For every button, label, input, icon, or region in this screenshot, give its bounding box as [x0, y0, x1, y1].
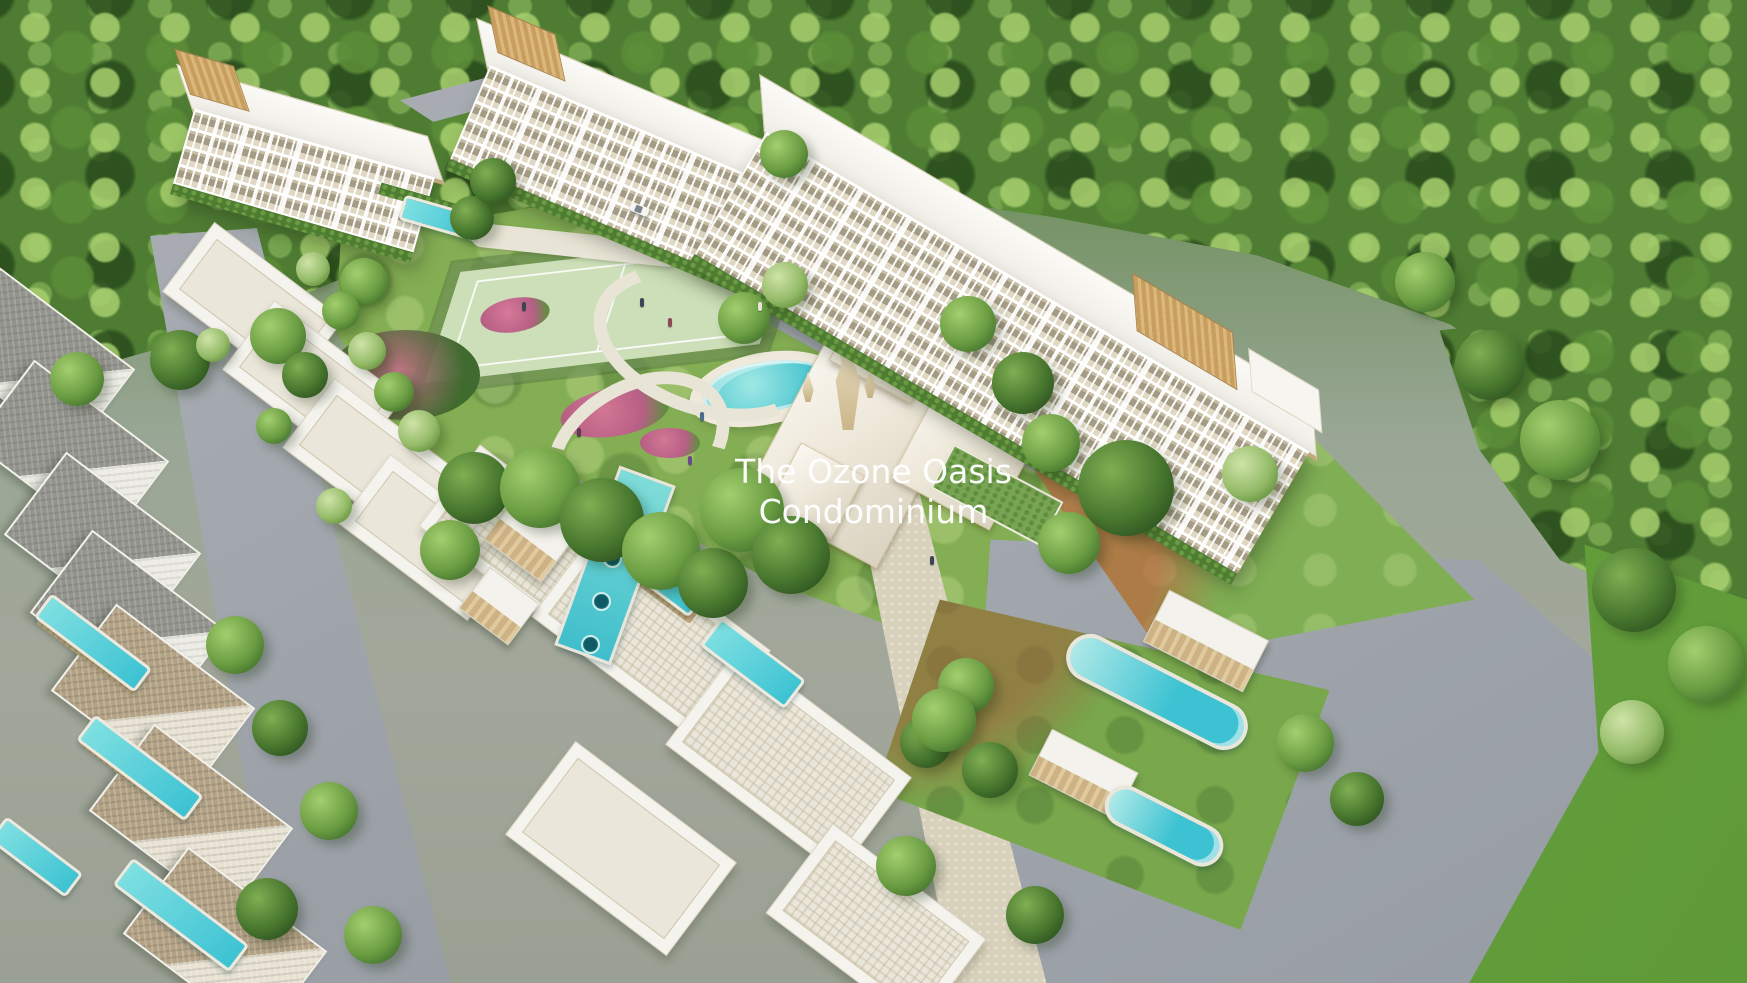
tree: [322, 292, 360, 330]
project-title-overlay: The Ozone Oasis Condominium: [735, 452, 1012, 532]
tree: [718, 292, 770, 344]
tree: [1038, 512, 1100, 574]
tree: [1078, 440, 1174, 536]
spa-tub: [592, 592, 611, 611]
tree: [1455, 330, 1525, 400]
tree: [1668, 626, 1744, 702]
project-title-line2: Condominium: [735, 492, 1012, 532]
tree: [1222, 446, 1278, 502]
person-figure: [668, 318, 672, 327]
tree: [296, 252, 330, 286]
villa-flat-roof: [505, 741, 737, 956]
tree: [470, 158, 516, 204]
tree: [196, 328, 230, 362]
person-figure: [930, 556, 934, 565]
tree: [344, 906, 402, 964]
tree: [206, 616, 264, 674]
tree: [876, 836, 936, 896]
aerial-render-scene: The Ozone Oasis Condominium: [0, 0, 1747, 983]
tree: [940, 296, 996, 352]
tree: [348, 332, 386, 370]
project-title-line1: The Ozone Oasis: [735, 452, 1012, 492]
tree: [256, 408, 292, 444]
tree: [398, 410, 440, 452]
person-figure: [700, 412, 704, 421]
person-figure: [688, 456, 692, 465]
tree: [1600, 700, 1664, 764]
tree: [1395, 252, 1455, 312]
tree: [1276, 714, 1334, 772]
tree: [1006, 886, 1064, 944]
person-figure: [640, 298, 644, 307]
tree: [252, 700, 308, 756]
tree: [1520, 400, 1600, 480]
tree: [762, 262, 808, 308]
tree: [678, 548, 748, 618]
tree: [912, 688, 976, 752]
tree: [992, 352, 1054, 414]
tree: [962, 742, 1018, 798]
tree: [420, 520, 480, 580]
tree: [50, 352, 104, 406]
villa-lap-pool: [0, 816, 83, 898]
tree: [300, 782, 358, 840]
person-figure: [577, 428, 581, 437]
tree: [316, 488, 352, 524]
tree: [236, 878, 298, 940]
spa-tub: [581, 635, 600, 654]
tree: [1592, 548, 1676, 632]
tree: [374, 372, 414, 412]
person-figure: [522, 302, 526, 311]
tree: [282, 352, 328, 398]
person-figure: [758, 302, 762, 311]
tree: [760, 130, 808, 178]
tree: [1330, 772, 1384, 826]
tree: [1022, 414, 1080, 472]
